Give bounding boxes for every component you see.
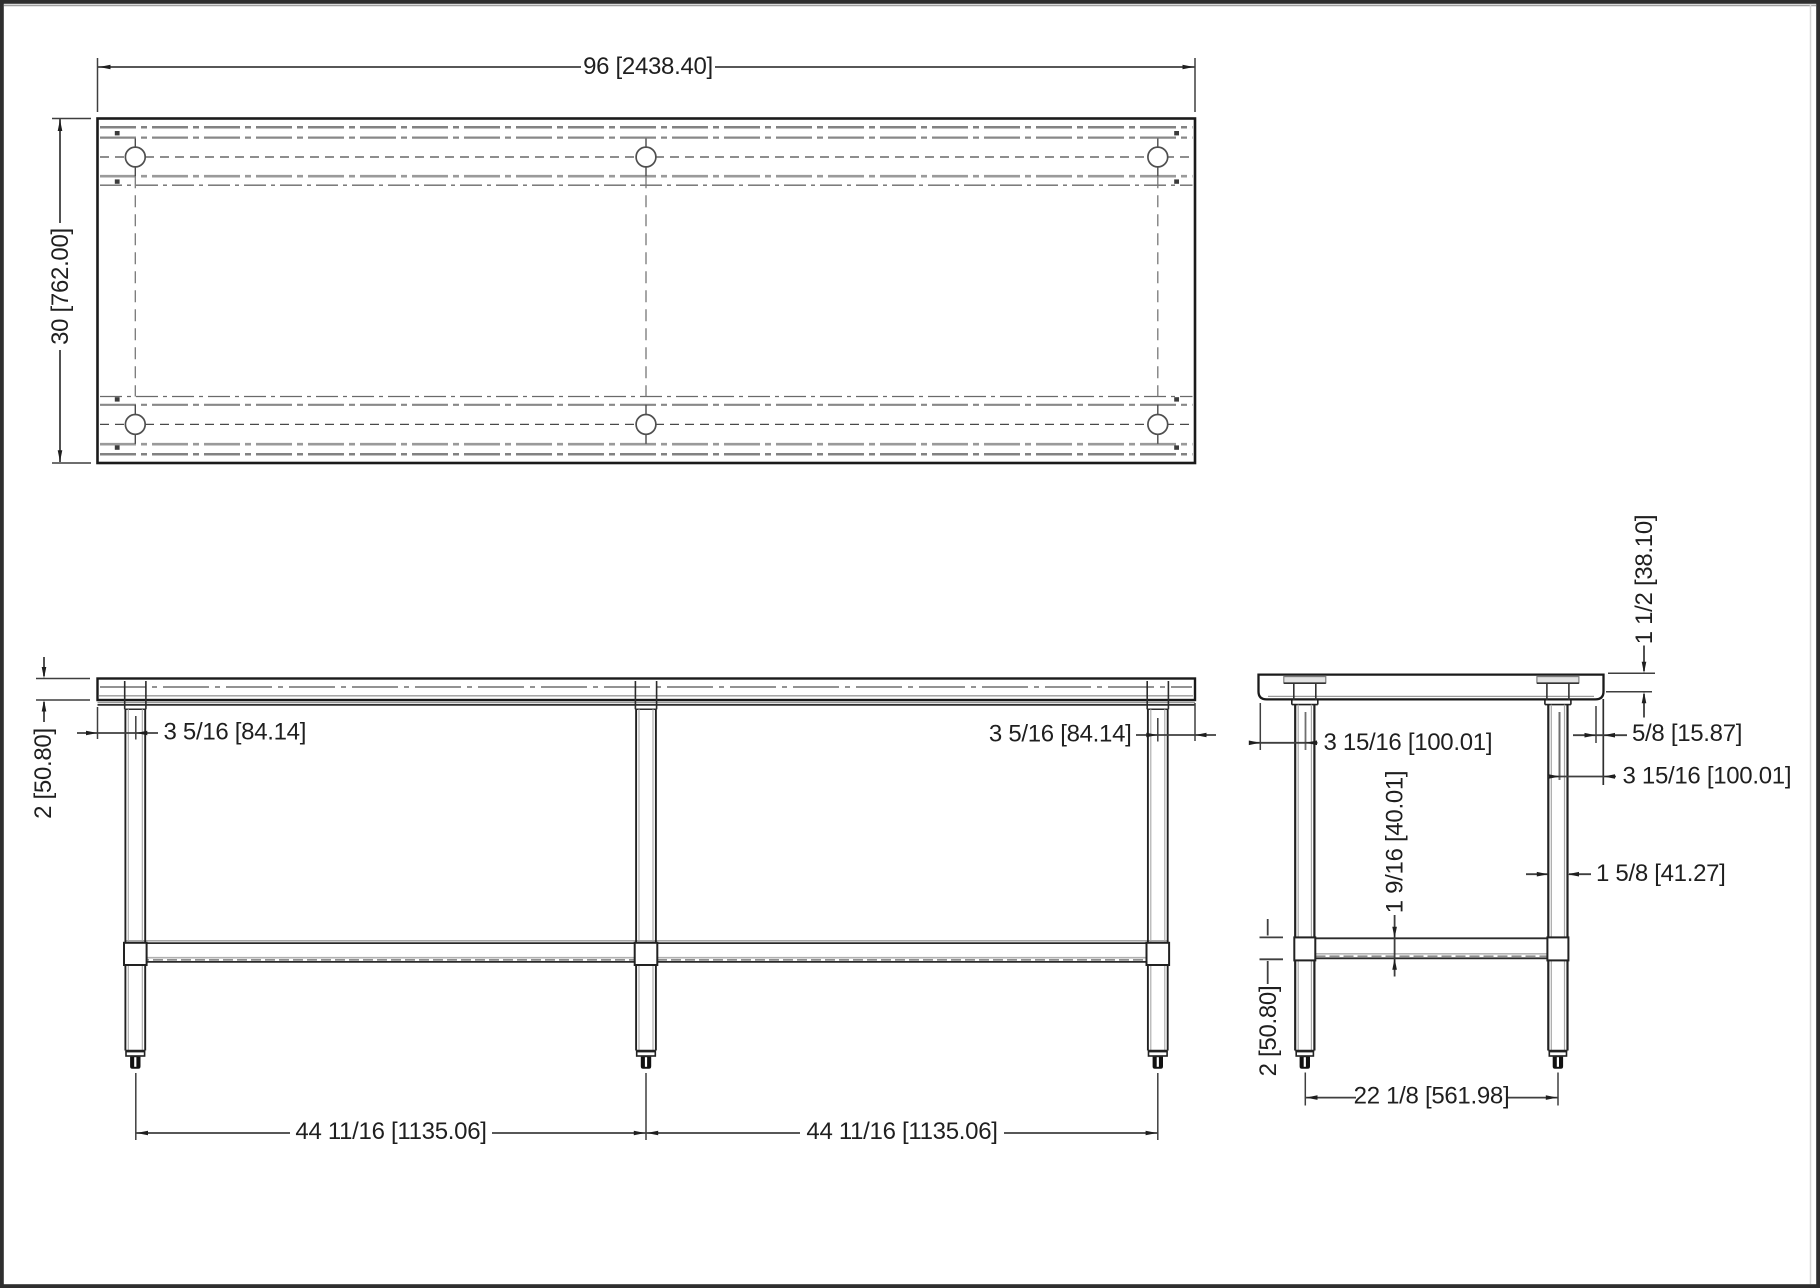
svg-text:3 5/16 [84.14]: 3 5/16 [84.14] xyxy=(164,718,307,745)
svg-text:2 [50.80]: 2 [50.80] xyxy=(30,728,57,819)
svg-text:3 5/16 [84.14]: 3 5/16 [84.14] xyxy=(989,721,1132,748)
svg-text:1 1/2 [38.10]: 1 1/2 [38.10] xyxy=(1631,515,1658,645)
svg-text:3 15/16 [100.01]: 3 15/16 [100.01] xyxy=(1324,729,1493,756)
svg-text:2 [50.80]: 2 [50.80] xyxy=(1255,986,1282,1077)
svg-text:1 9/16 [40.01]: 1 9/16 [40.01] xyxy=(1382,771,1409,914)
svg-text:44 11/16 [1135.06]: 44 11/16 [1135.06] xyxy=(806,1118,997,1145)
svg-text:30 [762.00]: 30 [762.00] xyxy=(47,228,74,345)
svg-text:44 11/16 [1135.06]: 44 11/16 [1135.06] xyxy=(295,1118,486,1145)
svg-text:5/8 [15.87]: 5/8 [15.87] xyxy=(1632,720,1742,747)
svg-text:96 [2438.40]: 96 [2438.40] xyxy=(583,53,713,80)
svg-text:22 1/8 [561.98]: 22 1/8 [561.98] xyxy=(1354,1083,1510,1110)
svg-text:1 5/8 [41.27]: 1 5/8 [41.27] xyxy=(1596,860,1726,887)
svg-text:3 15/16 [100.01]: 3 15/16 [100.01] xyxy=(1623,762,1792,789)
